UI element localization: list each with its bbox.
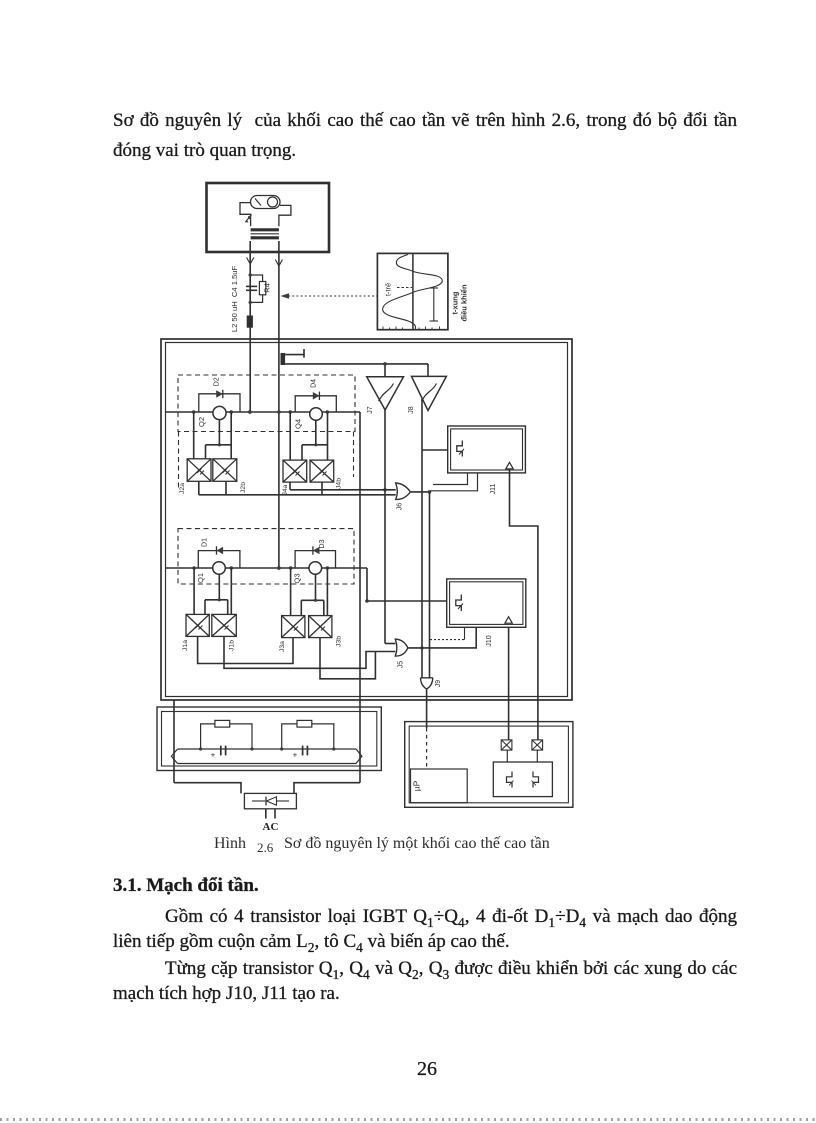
svg-text:t-trẻ: t-trẻ	[384, 283, 393, 296]
svg-text:J2b: J2b	[240, 482, 247, 493]
svg-text:J3b: J3b	[335, 636, 342, 647]
svg-text:t-xung: t-xung	[451, 291, 460, 314]
svg-text:Q3: Q3	[292, 573, 301, 583]
svg-text:D3: D3	[319, 539, 326, 548]
svg-text:Q1: Q1	[196, 573, 205, 583]
svg-text:J11: J11	[490, 484, 497, 495]
svg-text:điều khiển: điều khiển	[460, 284, 469, 322]
svg-text:J4a: J4a	[282, 484, 289, 495]
svg-text:D1: D1	[202, 538, 209, 547]
svg-text:Q4: Q4	[294, 419, 303, 429]
svg-text:Q2: Q2	[197, 417, 206, 427]
svg-text:R4: R4	[263, 283, 272, 293]
svg-text:J4b: J4b	[336, 478, 343, 489]
svg-text:D4: D4	[310, 379, 317, 388]
svg-text:J9: J9	[435, 680, 442, 688]
svg-text:J8: J8	[408, 406, 415, 414]
svg-text:J1b: J1b	[229, 640, 236, 651]
svg-text:J1a: J1a	[182, 640, 189, 651]
svg-text:D2: D2	[214, 377, 221, 386]
svg-text:J10: J10	[486, 635, 493, 646]
svg-text:J7: J7	[367, 406, 374, 414]
svg-text:+: +	[211, 751, 216, 760]
svg-text:µP: µP	[412, 780, 422, 791]
svg-text:Sơ đồ nguyên lý một khối cao t: Sơ đồ nguyên lý một khối cao thế cao tần	[284, 835, 550, 852]
svg-text:AC: AC	[263, 821, 279, 833]
svg-text:J3a: J3a	[279, 641, 286, 652]
svg-text:+: +	[293, 751, 298, 760]
svg-text:Hình: Hình	[214, 835, 246, 852]
svg-text:J6: J6	[397, 503, 404, 511]
svg-text:L2 50 uH C4 1.5uF: L2 50 uH C4 1.5uF	[230, 266, 239, 333]
svg-text:2.6: 2.6	[257, 840, 274, 855]
svg-text:J2a: J2a	[179, 483, 186, 494]
svg-text:J5: J5	[398, 661, 405, 669]
